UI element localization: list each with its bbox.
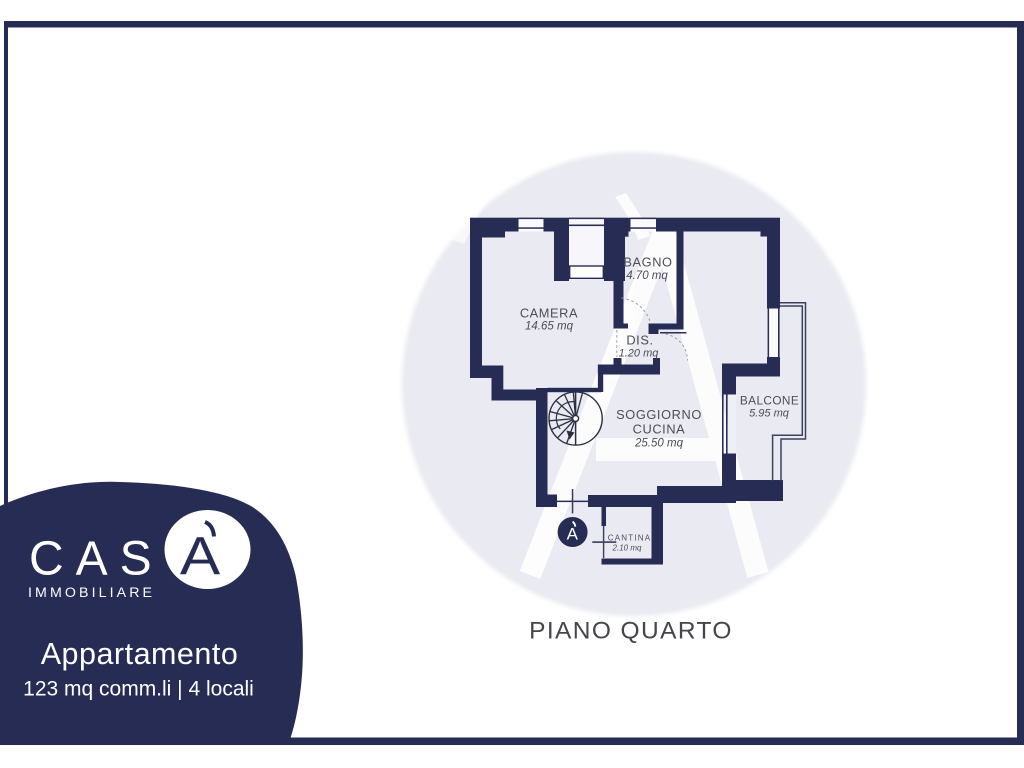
svg-text:PIANO QUARTO: PIANO QUARTO (529, 618, 733, 645)
svg-text:4.70 mq: 4.70 mq (626, 270, 668, 282)
svg-text:BAGNO: BAGNO (623, 255, 672, 270)
svg-text:1.20 mq: 1.20 mq (619, 348, 660, 360)
svg-text:123 mq comm.li | 4 locali: 123 mq comm.li | 4 locali (23, 678, 254, 701)
svg-text:CAS: CAS (29, 533, 164, 586)
svg-text:SOGGIORNO: SOGGIORNO (616, 407, 702, 422)
svg-text:2.10 mq: 2.10 mq (612, 544, 642, 553)
svg-text:CUCINA: CUCINA (633, 422, 686, 437)
svg-text:25.50 mq: 25.50 mq (634, 438, 684, 450)
svg-text:14.65 mq: 14.65 mq (525, 321, 574, 333)
svg-text:5.95 mq: 5.95 mq (749, 408, 790, 420)
svg-text:CAMERA: CAMERA (520, 306, 578, 321)
svg-text:Appartamento: Appartamento (41, 637, 239, 671)
svg-text:IMMOBILIARE: IMMOBILIARE (28, 585, 155, 601)
svg-text:A: A (567, 525, 579, 544)
svg-text:BALCONE: BALCONE (740, 394, 799, 408)
svg-text:CANTINA: CANTINA (608, 533, 652, 542)
svg-text:DIS.: DIS. (626, 333, 653, 348)
